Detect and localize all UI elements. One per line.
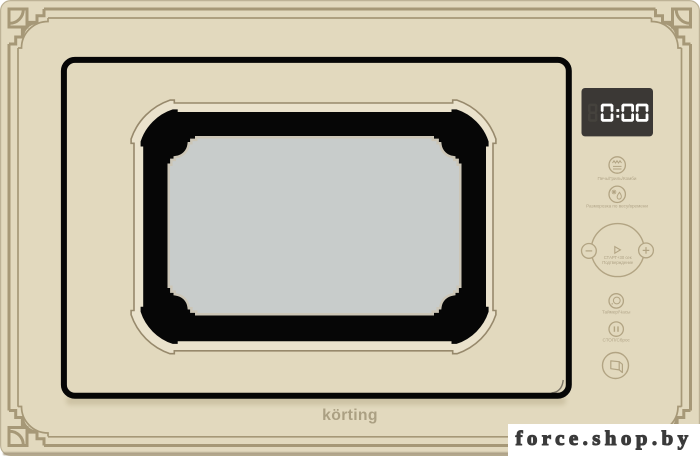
svg-text:СТАРТ+30 сек: СТАРТ+30 сек	[604, 255, 632, 260]
svg-text:Таймер/Часы: Таймер/Часы	[602, 308, 630, 314]
svg-text:Разморозка по весу/времени: Разморозка по весу/времени	[586, 204, 648, 209]
svg-text:körting: körting	[322, 407, 378, 424]
svg-text:force.shop.by: force.shop.by	[516, 426, 693, 450]
svg-text:Печь/Гриль/Комби: Печь/Гриль/Комби	[597, 176, 636, 181]
svg-text:СТОП/Сброс: СТОП/Сброс	[603, 337, 631, 342]
svg-text:Подтверждение: Подтверждение	[602, 260, 634, 265]
